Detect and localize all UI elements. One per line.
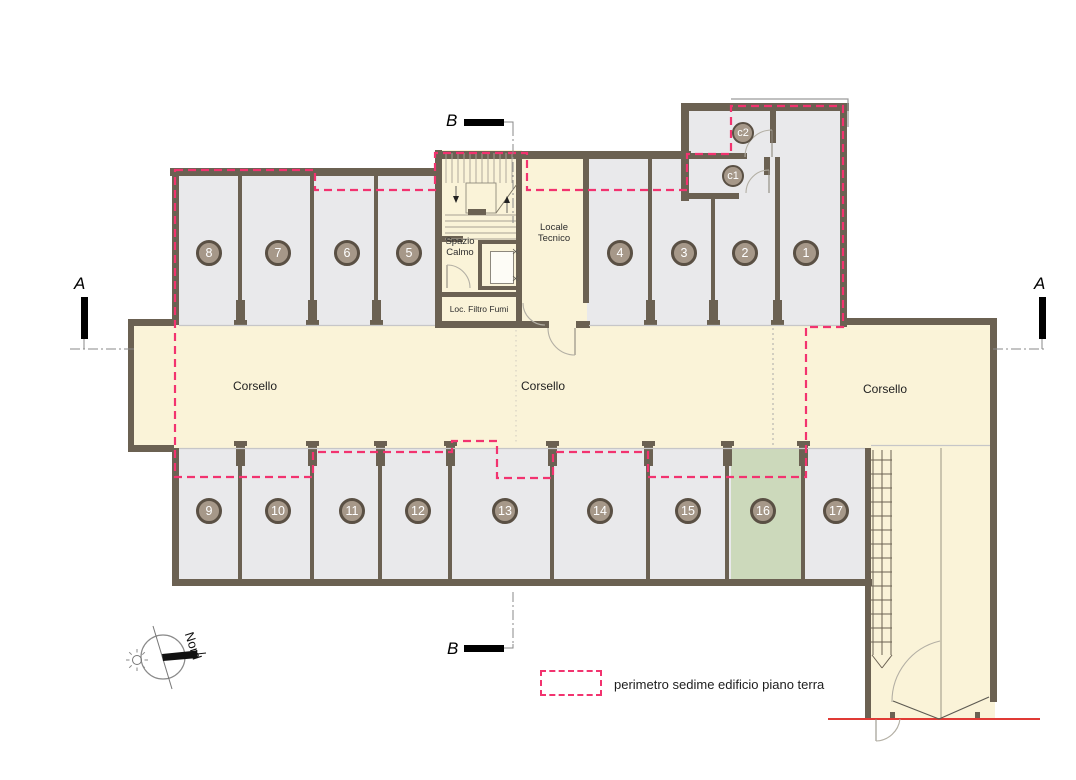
stall-badge-3: 3 — [671, 240, 697, 266]
section-a-left-bar — [81, 297, 88, 339]
stall-badge-16: 16 — [750, 498, 776, 524]
corsello-label-left: Corsello — [215, 379, 295, 393]
elevator-shaft — [478, 240, 522, 290]
stall-badge-14: 14 — [587, 498, 613, 524]
cellar-badge-c2: c2 — [732, 122, 754, 144]
corsello-label-right: Corsello — [845, 382, 925, 396]
locale-tecnico-line2: Tecnico — [538, 233, 570, 244]
legend-perimeter-label: perimetro sedime edificio piano terra — [614, 677, 824, 692]
stall-badge-10: 10 — [265, 498, 291, 524]
section-b-top-bar — [464, 119, 504, 126]
stall-badge-15: 15 — [675, 498, 701, 524]
stall-badge-6: 6 — [334, 240, 360, 266]
cellars-block-area — [683, 105, 846, 198]
locale-tecnico-line1: Locale — [540, 222, 568, 233]
spazio-calmo-line2: Calmo — [446, 247, 473, 258]
stall-badge-17: 17 — [823, 498, 849, 524]
stall-badge-13: 13 — [492, 498, 518, 524]
section-a-right-bar — [1039, 297, 1046, 339]
section-a-right-letter: A — [1034, 274, 1045, 294]
spazio-calmo-label: Spazio Calmo — [438, 236, 482, 258]
locale-tecnico-label: Locale Tecnico — [523, 222, 585, 244]
ramp-area — [865, 448, 995, 719]
stall-badge-5: 5 — [396, 240, 422, 266]
section-b-bottom-bar — [464, 645, 504, 652]
stall-badge-12: 12 — [405, 498, 431, 524]
legend-perimeter-swatch — [540, 670, 602, 696]
section-a-left-letter: A — [74, 274, 85, 294]
stall-badge-8: 8 — [196, 240, 222, 266]
filtro-fumi-label: Loc. Filtro Fumi — [438, 304, 520, 315]
corsello-label-center: Corsello — [503, 379, 583, 393]
stall-badge-11: 11 — [339, 498, 365, 524]
elevator-car — [490, 251, 514, 284]
north-label: Nord — [182, 630, 205, 661]
stall-badge-2: 2 — [732, 240, 758, 266]
section-b-top-letter: B — [446, 111, 457, 131]
stall-badge-7: 7 — [265, 240, 291, 266]
floor-plan-canvas: 8 7 6 5 4 3 2 1 c2 c1 9 10 11 12 13 14 1… — [0, 0, 1076, 780]
cellar-badge-c1: c1 — [722, 165, 744, 187]
spazio-calmo-line1: Spazio — [445, 236, 474, 247]
stall-badge-1: 1 — [793, 240, 819, 266]
section-b-bottom-letter: B — [447, 639, 458, 659]
stall-badge-9: 9 — [196, 498, 222, 524]
stall-badge-4: 4 — [607, 240, 633, 266]
